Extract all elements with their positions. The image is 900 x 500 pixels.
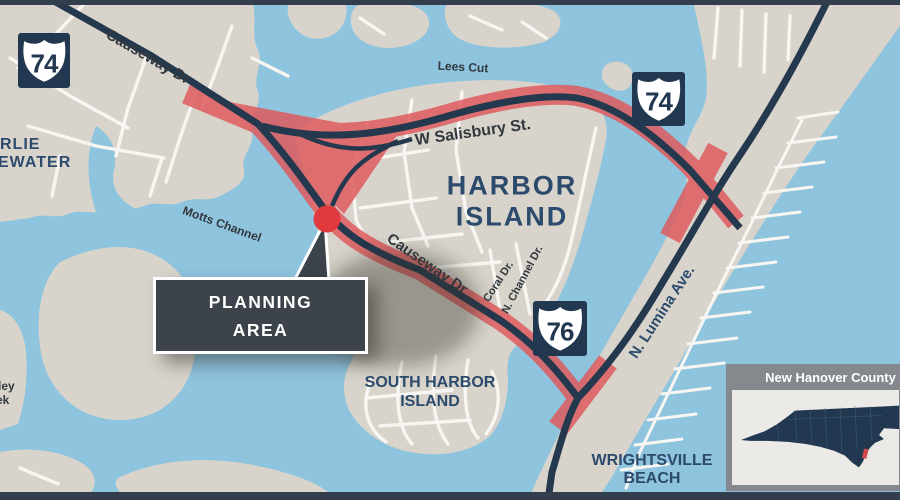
edge-label-cutoff-4: ek [0,394,9,406]
area-label-wrightsville-line2: BEACH [624,471,681,487]
area-label-south-harbor-line2: ISLAND [400,394,460,410]
route-number: 74 [632,87,685,118]
edge-label-cutoff-1: RLIE [0,137,40,153]
area-label-south-harbor-line1: SOUTH HARBOR [365,375,496,391]
map-canvas: Causeway Dr Lees Cut W Salisbury St. HAR… [0,0,900,500]
planning-area-callout: PLANNING AREA [153,277,368,354]
inset-panel [732,390,899,485]
area-label-harbor-island-line1: HARBOR [447,173,578,200]
letterbox-bar-top [0,0,900,5]
area-label-harbor-island-line2: ISLAND [456,204,569,231]
letterbox-bar-bottom [0,492,900,500]
route-number: 74 [18,48,70,79]
north-carolina-state-icon [732,390,899,485]
us-76-shield: 76 [533,301,587,356]
inset-title: New Hanover County [726,367,900,388]
planning-area-marker-dot [314,206,341,233]
us-74-shield-west: 74 [18,33,70,88]
us-74-shield-east: 74 [632,72,685,126]
area-label-wrightsville-line1: WRIGHTSVILLE [592,453,713,469]
edge-label-cutoff-3: ley [0,380,15,392]
county-locator-inset: New Hanover County [726,364,900,491]
edge-label-cutoff-2: EWATER [0,155,71,171]
water-label-lees-cut: Lees Cut [437,60,488,75]
callout-line1: PLANNING [156,292,365,313]
callout-line2: AREA [156,320,365,341]
route-number: 76 [533,316,587,347]
